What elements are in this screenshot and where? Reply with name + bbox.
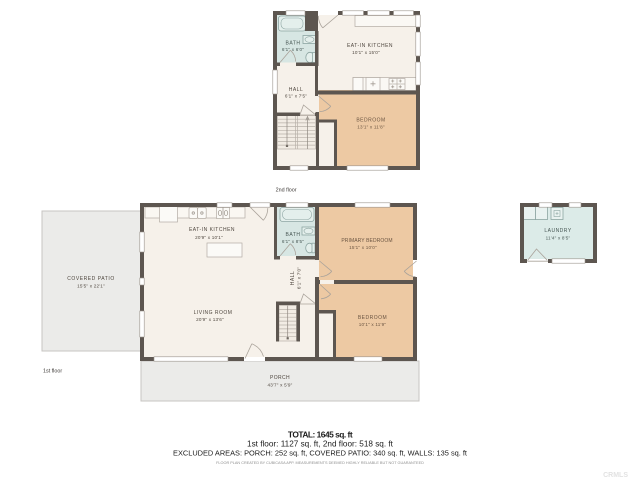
svg-text:CRMLS: CRMLS — [603, 472, 628, 479]
svg-text:20'9" x 10'1": 20'9" x 10'1" — [195, 235, 223, 240]
svg-text:BEDROOM: BEDROOM — [358, 315, 387, 321]
svg-text:COVERED PATIO: COVERED PATIO — [67, 276, 115, 282]
svg-text:HALL: HALL — [290, 271, 296, 286]
svg-text:EAT-IN KITCHEN: EAT-IN KITCHEN — [189, 227, 235, 233]
svg-text:20'9" x 13'6": 20'9" x 13'6" — [196, 317, 224, 322]
svg-text:HALL: HALL — [289, 87, 304, 93]
svg-text:15'1" x 10'0": 15'1" x 10'0" — [349, 245, 377, 250]
svg-text:BATH: BATH — [286, 232, 301, 238]
svg-text:2nd floor: 2nd floor — [276, 188, 297, 194]
svg-text:EXCLUDED AREAS: PORCH: 252 sq.: EXCLUDED AREAS: PORCH: 252 sq. ft, COVER… — [173, 449, 467, 458]
svg-text:LIVING ROOM: LIVING ROOM — [194, 310, 233, 316]
svg-text:10'1" x 15'0": 10'1" x 15'0" — [352, 50, 380, 55]
svg-text:EAT-IN KITCHEN: EAT-IN KITCHEN — [347, 43, 393, 49]
svg-text:6'1" x 6'0": 6'1" x 6'0" — [282, 47, 304, 52]
svg-text:BEDROOM: BEDROOM — [356, 118, 385, 124]
svg-text:1st floor: 1127 sq. ft, 2nd fl: 1st floor: 1127 sq. ft, 2nd floor: 518 s… — [247, 440, 394, 449]
svg-text:13'1" x 11'8": 13'1" x 11'8" — [357, 125, 385, 130]
svg-text:1st floor: 1st floor — [43, 369, 62, 375]
svg-text:TOTAL: 1645 sq. ft: TOTAL: 1645 sq. ft — [288, 430, 353, 440]
svg-text:PORCH: PORCH — [270, 375, 290, 381]
svg-text:43'7" x 5'9": 43'7" x 5'9" — [267, 383, 292, 388]
svg-text:6'1" x 7'5": 6'1" x 7'5" — [285, 94, 307, 99]
svg-text:11'4" x 8'5": 11'4" x 8'5" — [546, 236, 571, 241]
svg-text:FLOOR PLAN CREATED BY CUBICASA: FLOOR PLAN CREATED BY CUBICASA APP. MEAS… — [216, 461, 424, 465]
svg-text:10'1" x 11'9": 10'1" x 11'9" — [359, 322, 387, 327]
svg-text:PRIMARY BEDROOM: PRIMARY BEDROOM — [341, 238, 392, 244]
svg-text:LAUNDRY: LAUNDRY — [544, 228, 571, 234]
svg-text:BATH: BATH — [286, 41, 301, 47]
svg-text:15'5" x 22'1": 15'5" x 22'1" — [77, 284, 105, 289]
svg-text:6'1" x 8'5": 6'1" x 8'5" — [282, 239, 304, 244]
svg-text:6'1" x 7'0": 6'1" x 7'0" — [297, 267, 302, 289]
